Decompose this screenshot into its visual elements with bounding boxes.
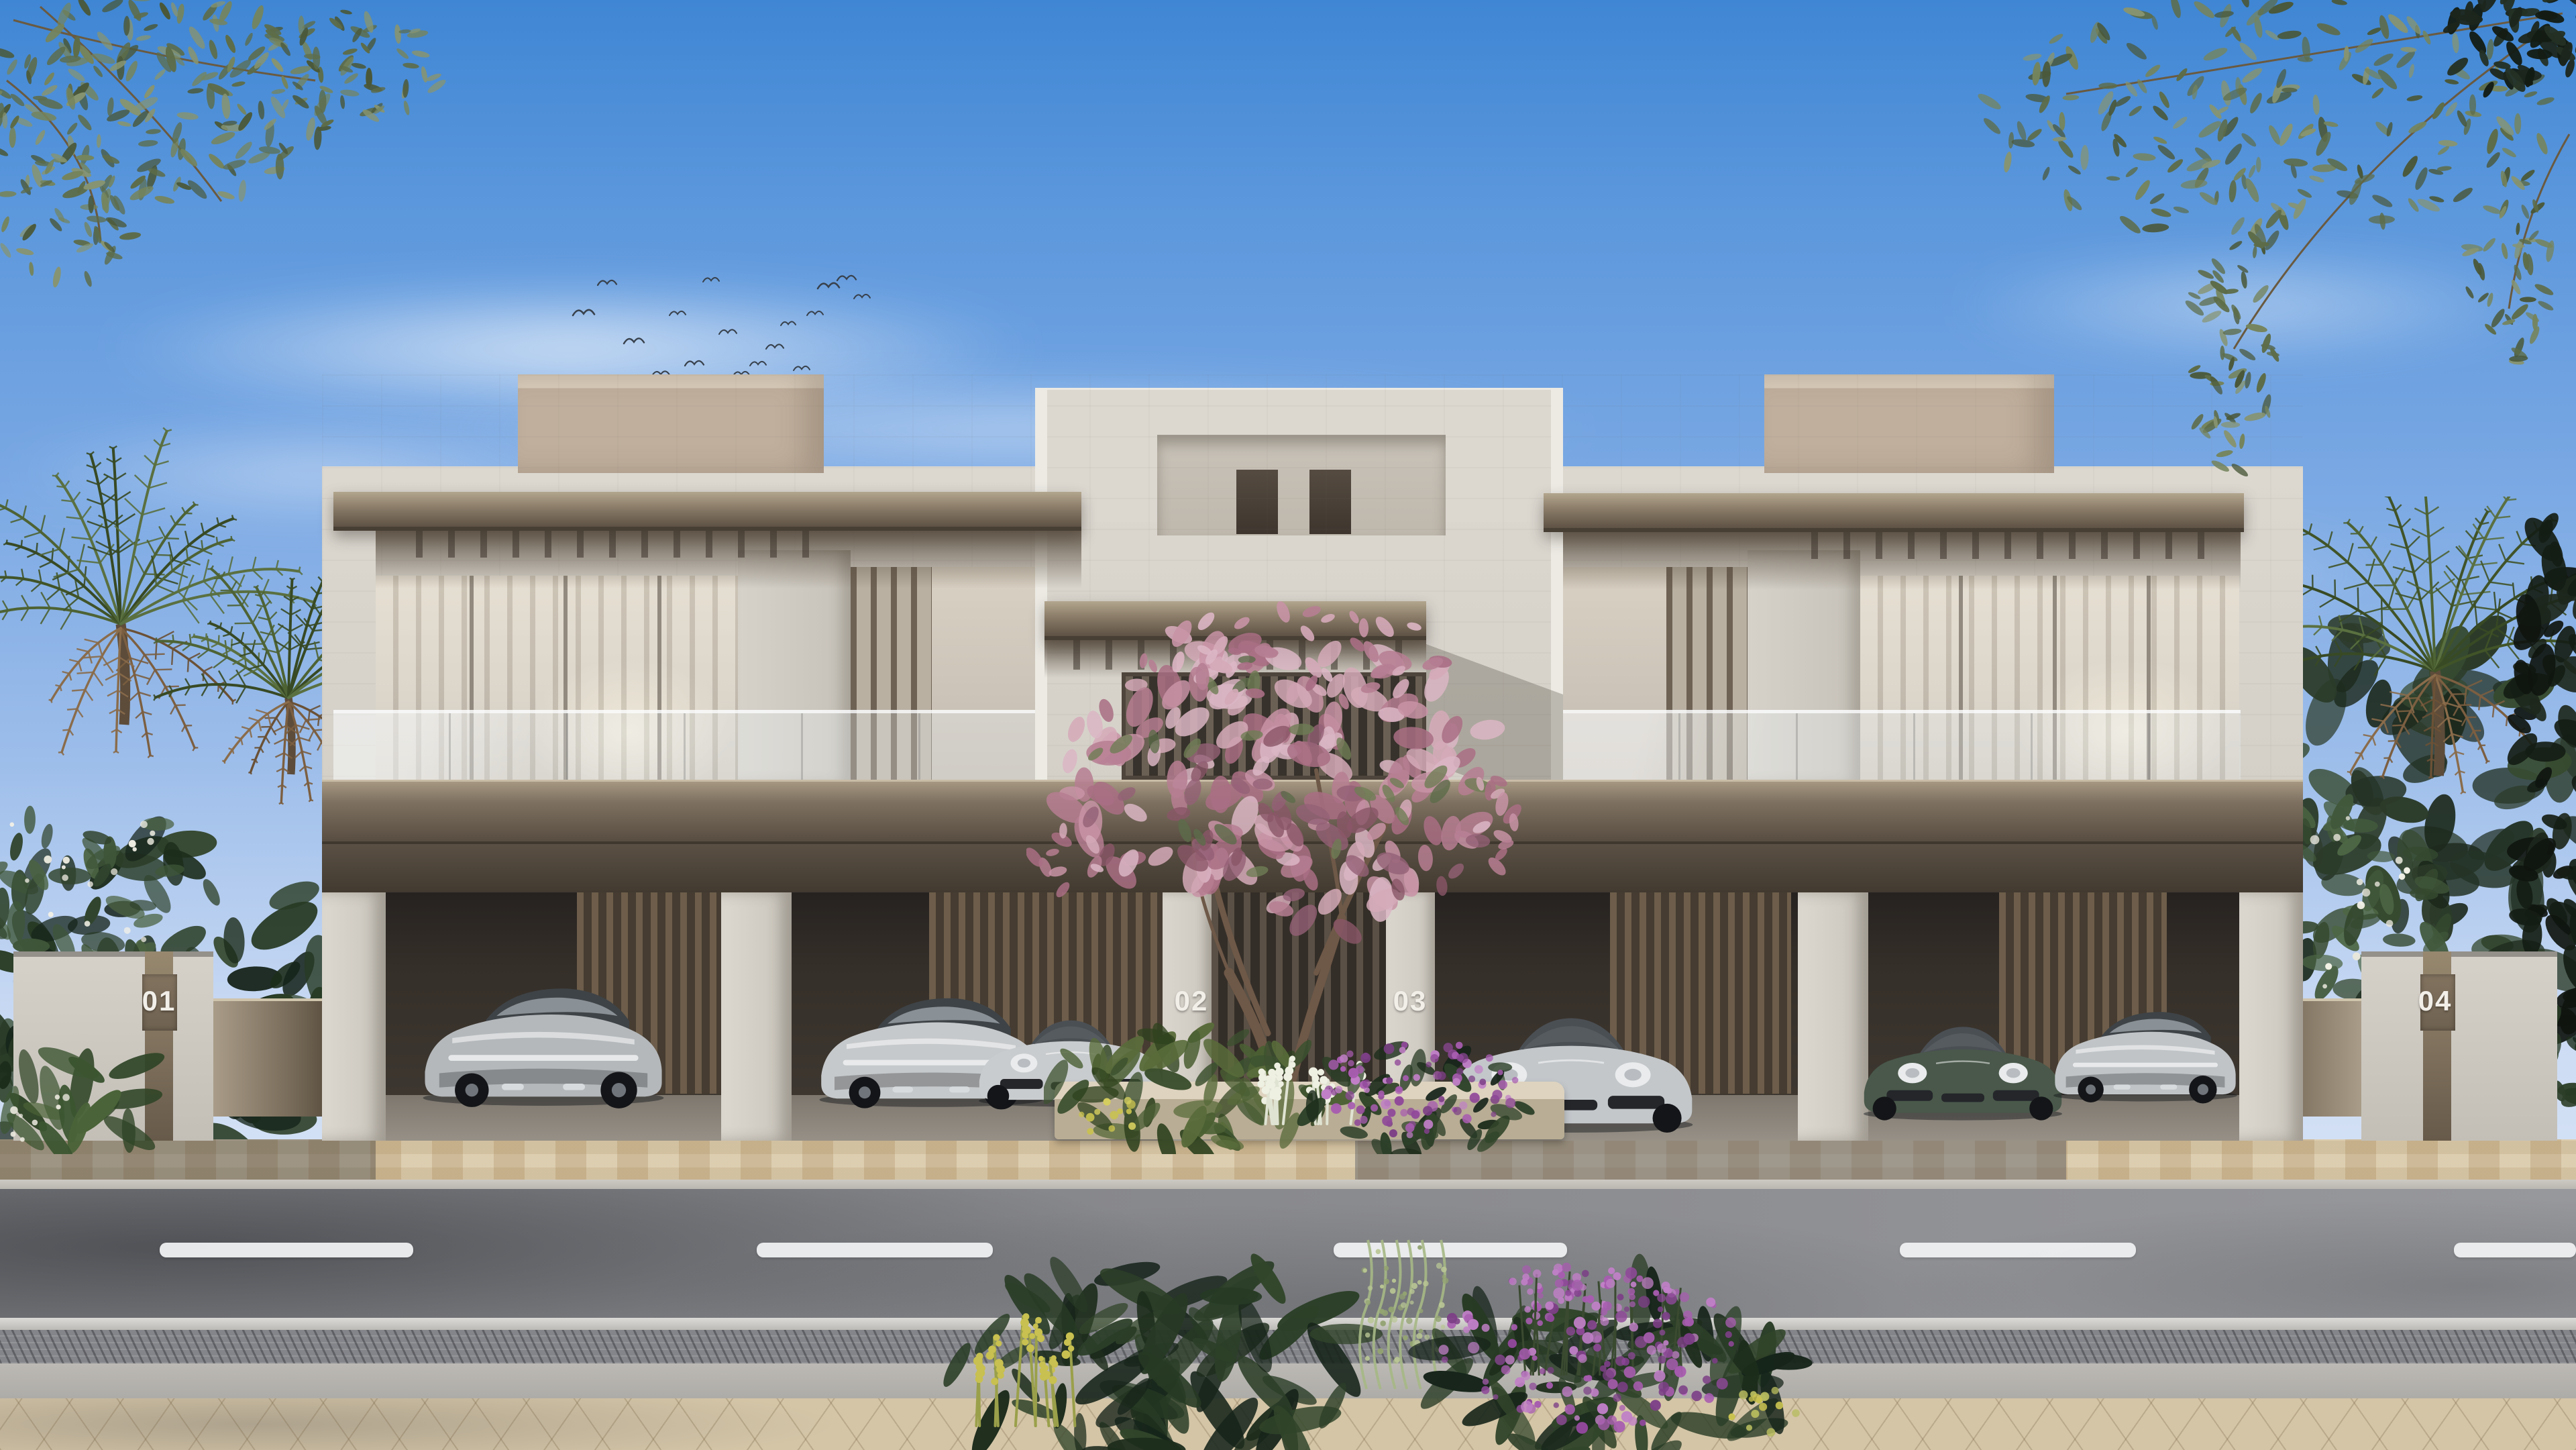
- car-silver-coupe-rear: [2053, 1012, 2237, 1103]
- foreground-planting: [932, 1221, 1858, 1450]
- tropical-leaves: [938, 1249, 1383, 1450]
- hanging-vine-strands: [1360, 1240, 1448, 1389]
- olive-branch-top-right: [1919, 0, 2576, 557]
- shaded-leaves-corner: [2442, 0, 2576, 99]
- olive-branch-top-left: [0, 0, 523, 349]
- hanging-sprig: [2184, 146, 2556, 478]
- purple-flowers: [1293, 1037, 1536, 1154]
- planter-bed: [1044, 986, 1574, 1154]
- architectural-render: 01 02 03 04: [0, 0, 2576, 1450]
- olive-leaves: [1976, 0, 2555, 252]
- car-green-gt-front: [1864, 1027, 2062, 1120]
- car-grey-coupe-rear: [423, 988, 664, 1108]
